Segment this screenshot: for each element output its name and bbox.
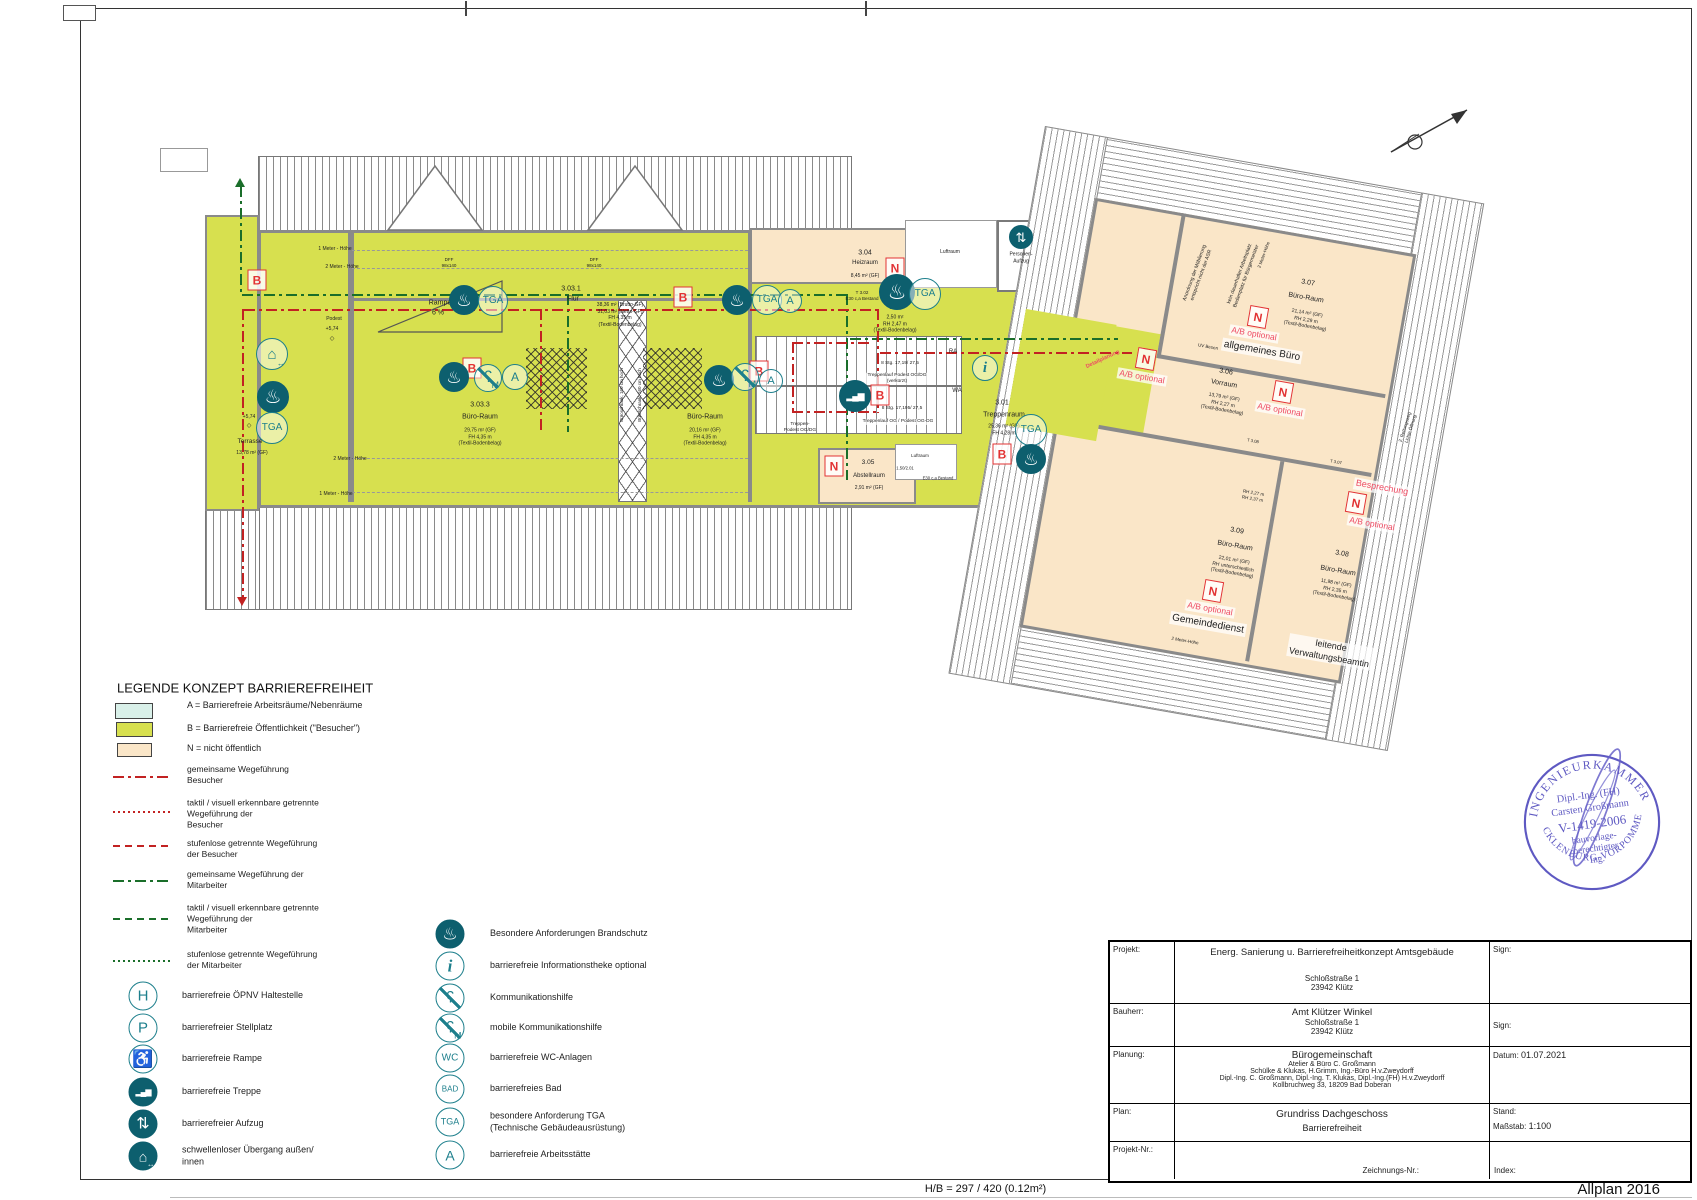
legend-title: LEGENDE KONZEPT BARRIEREFREIHEIT [117,681,373,698]
fold-mark [63,5,96,21]
fire-protection-icon: ♨ [449,285,479,315]
legend-icon-label: barrierefreie ÖPNV Haltestelle [182,990,303,1002]
legend-icon-label: barrierefreie WC-Anlagen [490,1052,592,1064]
zone-marker-b: B [993,444,1012,465]
wc-glyph: WC [442,1053,459,1063]
tga-glyph: TGA [262,423,283,433]
terrace [205,215,259,511]
plan-label: 8 Stg. 17,19/ 27,5 [881,361,919,367]
icon-sub: M [454,1032,461,1041]
zone-marker-n: N [1135,347,1157,371]
tga-icon: TGA [478,286,508,316]
plan-label: 2,50 m² RH 2,47 m (Textil-Bodenbelag) [873,314,916,334]
legend-line-label: taktil / visuell erkennbare getrennte We… [187,797,319,830]
fire-protection-glyph: ♨ [729,292,744,309]
tga-icon: TGA [436,1108,465,1137]
plan-label: 38,36 m² (Brutto-GF) 31,03 m² (Netto-GF)… [597,302,643,328]
roof-gables [258,156,1058,406]
workplace-a-icon: A [502,364,528,390]
workplace-a-icon: A [778,289,802,313]
zone-marker-n: N [1247,305,1269,329]
plan-label: 2 Meter - Höhe [333,456,366,463]
plan-title: Grundriss Dachgeschoss [1178,1109,1486,1120]
legend-line-sample [113,845,170,847]
plan-label: Abstellraum [853,473,885,481]
bauherr-label: Bauherr: [1113,1007,1144,1016]
planner-line: Dipl.-Ing. C. Großmann, Dipl.-Ing. T. Kl… [1178,1075,1486,1082]
tga-glyph: TGA [757,295,778,305]
icon-sub: ↔ [147,1161,155,1169]
roof-hatch-bottom [258,502,852,610]
fire-protection-glyph: ♨ [711,372,726,389]
route-arrow [235,178,245,187]
massstab-label: Maßstab: [1493,1122,1526,1131]
plan-label: Büroschrank, 160 cm hoch [637,368,643,422]
icon-sub: ↔ [277,360,285,368]
fire-protection-icon: ♨ [704,365,734,395]
workplace-a-glyph: A [786,296,793,307]
plan-label: Personen- Aufzug [1009,252,1032,265]
project-city: 23942 Klütz [1178,983,1486,992]
plan-label: +5,74 [243,414,256,421]
legend-area-label: A = Barrierefreie Arbeitsräume/Nebenräum… [187,700,362,712]
plan-label: 3.01 [995,398,1009,407]
fire-protection-icon: ♨ [1016,444,1046,474]
mobile-hearing-aid-icon: ʕM [474,364,502,392]
legend-line-sample [113,918,170,920]
plan-label: 2 Meter - Höhe [325,264,358,271]
plan-label: 13,78 m² (GF) [236,450,267,457]
tb-label: Projekt-Nr.: [1110,1142,1175,1179]
tb-plan: Grundriss Dachgeschoss Barrierefreiheit [1175,1104,1490,1142]
planner-line: Schülke & Klukas, H.Grimm, Ing.-Büro H.v… [1178,1068,1486,1075]
planner-address: Kollbruchweg 33, 18209 Bad Doberan [1178,1082,1486,1089]
tb-sign2: Sign: [1490,1004,1690,1047]
ramp-glyph: ♿ [132,1051,153,1068]
elevator-icon: ⇅ [129,1110,158,1139]
stairs-glyph: ▂▄▆ [846,392,863,401]
mobile-hearing-aid-glyph: ʕ [741,369,749,385]
workplace-a-icon: A [759,369,783,393]
fire-protection-glyph: ♨ [456,292,471,309]
plan-label: RA [949,349,957,357]
massstab-value: 1:100 [1529,1121,1552,1131]
zone-marker-n: N [1272,380,1294,404]
legend-line-label: gemeinsame Wegeführung Besucher [187,764,289,786]
parking-icon: P [129,1014,158,1043]
plan-label: 3.03.3 [470,400,489,409]
plan-label: DFF 98x140 [587,257,602,269]
legend-icon-label: barrierefreie Informationstheke optional [490,960,647,972]
hearing-aid-icon: ʕ [436,984,465,1013]
legend-swatch [117,743,152,757]
plan-label: 3.05 [862,459,875,467]
plan-label: 2,91 m² (GF) [855,485,884,492]
fire-protection-glyph: ♨ [446,369,461,386]
plan-label: 6 % [432,308,444,317]
elevator-glyph: ⇅ [136,1116,149,1132]
project-title: Energ. Sanierung u. Barrierefreiheitkonz… [1178,947,1486,958]
planner-name: Bürogemeinschaft [1178,1050,1486,1061]
bath-icon: BAD [436,1075,465,1104]
planner-line: Atelier & Büro C. Großmann [1178,1061,1486,1068]
plan-label: 20,16 m² (GF) FH 4,35 m (Textil-Bodenbel… [683,427,726,447]
bath-glyph: BAD [442,1085,458,1093]
legend-icon-label: Kommunikationshilfe [490,992,573,1004]
route-visitor [792,342,794,412]
route-staff [240,186,242,294]
legend-line-sample [113,776,170,778]
stand-label: Stand: [1493,1107,1687,1116]
route-visitor [540,309,542,432]
plan-subtitle: Barrierefreiheit [1178,1123,1486,1133]
stairs-glyph: ▂▄▆ [136,1088,151,1096]
legend-line-sample [113,880,170,882]
tb-projekt: Energ. Sanierung u. Barrierefreiheitkonz… [1175,942,1490,1004]
parking-glyph: P [138,1021,148,1036]
legend-icon-label: besondere Anforderung TGA (Technische Ge… [490,1110,625,1133]
plan-label: 29,75 m² (GF) FH 4,35 m (Textil-Bodenbel… [458,427,501,447]
plan-label: Podest [326,316,342,323]
legend-swatch [116,722,153,737]
mobile-hearing-aid-glyph: ʕ [446,1020,454,1036]
projektnr-label: Projekt-Nr.: [1113,1145,1153,1154]
tb-sign1: Sign: [1490,942,1690,1004]
transit-stop-icon: H [129,982,158,1011]
plan-label: Heizraum [852,260,878,268]
legend-area-label: B = Barrierefreie Öffentlichkeit ("Besuc… [187,723,360,735]
legend-swatch [115,703,153,719]
fire-protection-glyph: ♨ [888,282,907,303]
plan-label: Büro-Raum [687,412,723,421]
legend-area-label: N = nicht öffentlich [187,743,261,755]
plan-label: 1 Meter - Höhe [318,246,351,253]
tb-label: Plan: [1110,1104,1175,1142]
zone-marker-b: B [871,385,890,406]
tga-glyph: TGA [1021,425,1042,435]
plan-label: Treppen- Podest OG/DG [784,422,816,434]
plan-label: DFF 98x140 [442,257,457,269]
plan-label: 1.50/2.01 [896,465,913,470]
projekt-label: Projekt: [1113,945,1140,954]
plan-label: 3.04 [858,248,872,257]
tb-label: Projekt: [1110,942,1175,1004]
mobile-hearing-aid-glyph: ʕ [484,370,492,386]
plan-label: Büroschrank, 160 cm hoch [619,368,625,422]
threshold-free-door-glyph: ⌂ [267,347,276,362]
stamp-line: Ing. [1589,854,1605,866]
height-line [352,492,748,493]
paper-edge [170,1197,1692,1198]
stairs-icon: ▂▄▆ [129,1078,158,1107]
plan-label: E30 c,a Bestand [923,475,954,480]
fire-protection-icon: ♨ [439,362,469,392]
tb-index: Index: [1490,1142,1690,1179]
plan-label: 8 Stg. 17,195/ 27,5 [882,406,923,412]
threshold-free-door-icon: ⌂↔ [256,338,288,370]
legend-icon-label: barrierefreier Aufzug [182,1118,264,1130]
legend-icon-label: barrierefreies Bad [490,1083,562,1095]
wc-icon: WC [436,1044,465,1073]
tga-glyph: TGA [483,296,504,306]
application-label: Allplan 2016 [1480,1181,1660,1198]
plan-label: ◇ [247,423,252,431]
zone-marker-n: N [825,456,844,477]
plan-label: Treppenlauf Podest OG/DG (verkürzt) [865,373,928,385]
plan-label: WA [952,388,961,396]
plan-label: +5,74 [326,326,339,333]
route-visitor [792,342,872,344]
route-staff [567,294,569,432]
plan-label: Plan: [1113,1107,1131,1116]
fire-protection-icon: ♨ [436,920,465,949]
legend-icon-label: barrierefreie Treppe [182,1086,261,1098]
icon-sub: M [492,381,499,390]
fire-protection-glyph: ♨ [264,388,281,407]
mobile-hearing-aid-icon: ʕM [731,363,759,391]
zone-marker-b: B [248,270,267,291]
elevator-icon: ⇅ [1009,225,1033,249]
fire-protection-glyph: ♨ [442,926,457,943]
info-desk-glyph: i [983,361,987,376]
plan-label: Rampe [429,298,452,307]
plan-label: Luftraum [911,453,929,459]
legend-icon-label: Besondere Anforderungen Brandschutz [490,928,648,940]
project-street: Schloßstraße 1 [1178,974,1486,983]
threshold-free-door-icon: ⌂↔ [129,1142,158,1171]
sign-label: Sign: [1493,1021,1511,1030]
sign-label: Sign: [1493,945,1511,954]
tga-glyph: TGA [441,1118,460,1127]
zone-marker-n: N [1345,491,1367,515]
plan-label: Luftraum [940,249,960,256]
north-arrow-icon [1385,100,1477,162]
workplace-a-glyph: A [511,371,519,383]
info-desk-icon: i [972,355,998,381]
datum-value: 01.07.2021 [1521,1050,1566,1060]
legend-icon-label: mobile Kommunikationshilfe [490,1022,602,1034]
client-name: Amt Klützer Winkel [1178,1007,1486,1018]
transit-stop-glyph: H [138,989,149,1004]
legend-icon-label: barrierefreie Rampe [182,1053,262,1065]
sheet-format-label: H/B = 297 / 420 (0.12m²) [878,1183,1093,1195]
fire-protection-icon: ♨ [722,285,752,315]
tb-label: Planung: [1110,1047,1175,1104]
zeichnungsnr-label: Zeichnungs-Nr.: [1363,1166,1419,1175]
tga-icon: TGA [909,278,941,310]
planung-label: Planung: [1113,1050,1145,1059]
route-arrow [237,597,247,606]
tb-datum: Datum: 01.07.2021 [1490,1047,1690,1104]
client-city: 23942 Klütz [1178,1027,1486,1036]
info-desk-icon: i [436,952,465,981]
legend-line-sample [113,811,170,813]
route-staff [850,338,1118,340]
legend-line-label: taktil / visuell erkennbare getrennte We… [187,902,319,935]
fold-mark [865,1,867,16]
zone-marker-n: N [1202,579,1224,603]
tb-zeichnung: Zeichnungs-Nr.: [1175,1142,1490,1179]
legend-line-label: gemeinsame Wegeführung der Mitarbeiter [187,869,304,891]
legend-icon-label: barrierefreie Arbeitsstätte [490,1149,591,1161]
legend-line-sample [113,960,170,962]
legend-icon-label: barrierefreier Stellplatz [182,1022,273,1034]
fire-protection-icon: ♨ [257,381,289,413]
index-label: Index: [1494,1166,1516,1175]
tga-glyph: TGA [915,289,936,299]
icon-sub: M [749,380,756,389]
workplace-a-glyph: A [767,376,774,387]
title-block: Projekt: Energ. Sanierung u. Barrierefre… [1108,940,1692,1183]
tb-label: Bauherr: [1110,1004,1175,1047]
chimney-outline [160,148,208,172]
workplace-a-icon: A [436,1141,465,1170]
tga-icon: TGA [1015,414,1047,446]
tb-stand: Stand: Maßstab: 1:100 [1490,1104,1690,1142]
client-street: Schloßstraße 1 [1178,1018,1486,1027]
zone-marker-b: B [674,287,693,308]
datum-label: Datum: [1493,1051,1519,1060]
tb-planung: Bürogemeinschaft Atelier & Büro C. Großm… [1175,1047,1490,1104]
roof-hatch-bottom-left [205,507,260,610]
height-line [352,458,748,459]
fire-protection-glyph: ♨ [1023,451,1038,468]
plan-label: 8,45 m² (GF) [851,273,880,280]
engineer-stamp: INGENIEURKAMMER MECKLENBURG-VORPOMMERN D… [1495,725,1689,919]
fold-mark [465,1,467,16]
plan-label: Terrasse [238,438,263,446]
route-visitor [880,352,1132,354]
plan-label: Treppenlauf OG / Podest OG-DG [861,419,936,425]
hearing-aid-glyph: ʕ [446,990,454,1006]
plan-label: Büro-Raum [462,412,498,421]
plan-label: ◇ [330,336,335,344]
elevator-glyph: ⇅ [1016,231,1027,244]
ramp-icon: ♿ [129,1045,158,1074]
plan-label: Flur [567,294,579,303]
route-visitor [792,411,878,413]
legend-line-label: stufenlose getrennte Wegeführung der Mit… [187,949,317,971]
plan-label: T 3.02 E30 c,a Bestand [845,290,878,302]
info-desk-glyph: i [448,958,453,975]
plan-label: 3.03.1 [561,284,580,293]
mobile-hearing-aid-icon: ʕM [436,1014,465,1043]
tga-icon: TGA [256,412,288,444]
plan-label: 1 Meter - Höhe [319,491,352,498]
stairs-icon: ▂▄▆ [839,380,871,412]
legend-icon-label: schwellenloser Übergang außen/ innen [182,1144,314,1167]
legend-line-label: stufenlose getrennte Wegeführung der Bes… [187,838,317,860]
workplace-a-glyph: A [445,1148,454,1162]
tb-bauherr: Amt Klützer Winkel Schloßstraße 1 23942 … [1175,1004,1490,1047]
